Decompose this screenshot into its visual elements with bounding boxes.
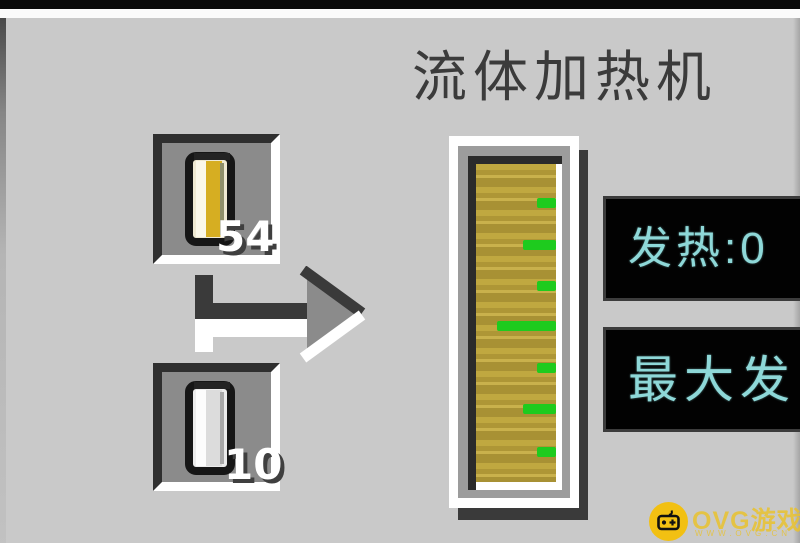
max-heat-readout-panel: 最大发 xyxy=(603,327,800,432)
gui-top-highlight xyxy=(0,9,800,18)
gauge-scale-tick xyxy=(497,321,556,331)
gauge-scale-tick xyxy=(523,404,556,414)
watermark-url-text: WWW.OVG.CN xyxy=(695,529,791,538)
gamepad-logo-icon xyxy=(649,502,688,541)
heat-readout-text: 发热:0 xyxy=(606,227,769,271)
input-stack-count: 54 xyxy=(216,216,274,258)
gauge-scale-tick xyxy=(537,363,556,373)
gauge-scale-tick xyxy=(523,240,556,250)
top-letterbox-bar xyxy=(0,0,800,9)
gauge-scale-tick xyxy=(537,281,556,291)
gui-left-edge-shadow xyxy=(0,18,6,543)
gauge-fill xyxy=(476,164,556,482)
process-arrow-icon xyxy=(186,266,370,366)
fluid-heater-gui: 流体加热机 54 10 xyxy=(0,0,800,543)
machine-title: 流体加热机 xyxy=(412,32,717,112)
heat-scale-gauge xyxy=(449,135,589,522)
watermark: OVG游戏网 WWW.OVG.CN xyxy=(645,498,800,543)
max-heat-readout-text: 最大发 xyxy=(606,355,796,405)
gauge-scale-tick xyxy=(537,447,556,457)
heat-readout-panel: 发热:0 xyxy=(603,196,800,301)
gauge-scale-tick xyxy=(537,198,556,208)
output-stack-count: 10 xyxy=(224,444,282,486)
